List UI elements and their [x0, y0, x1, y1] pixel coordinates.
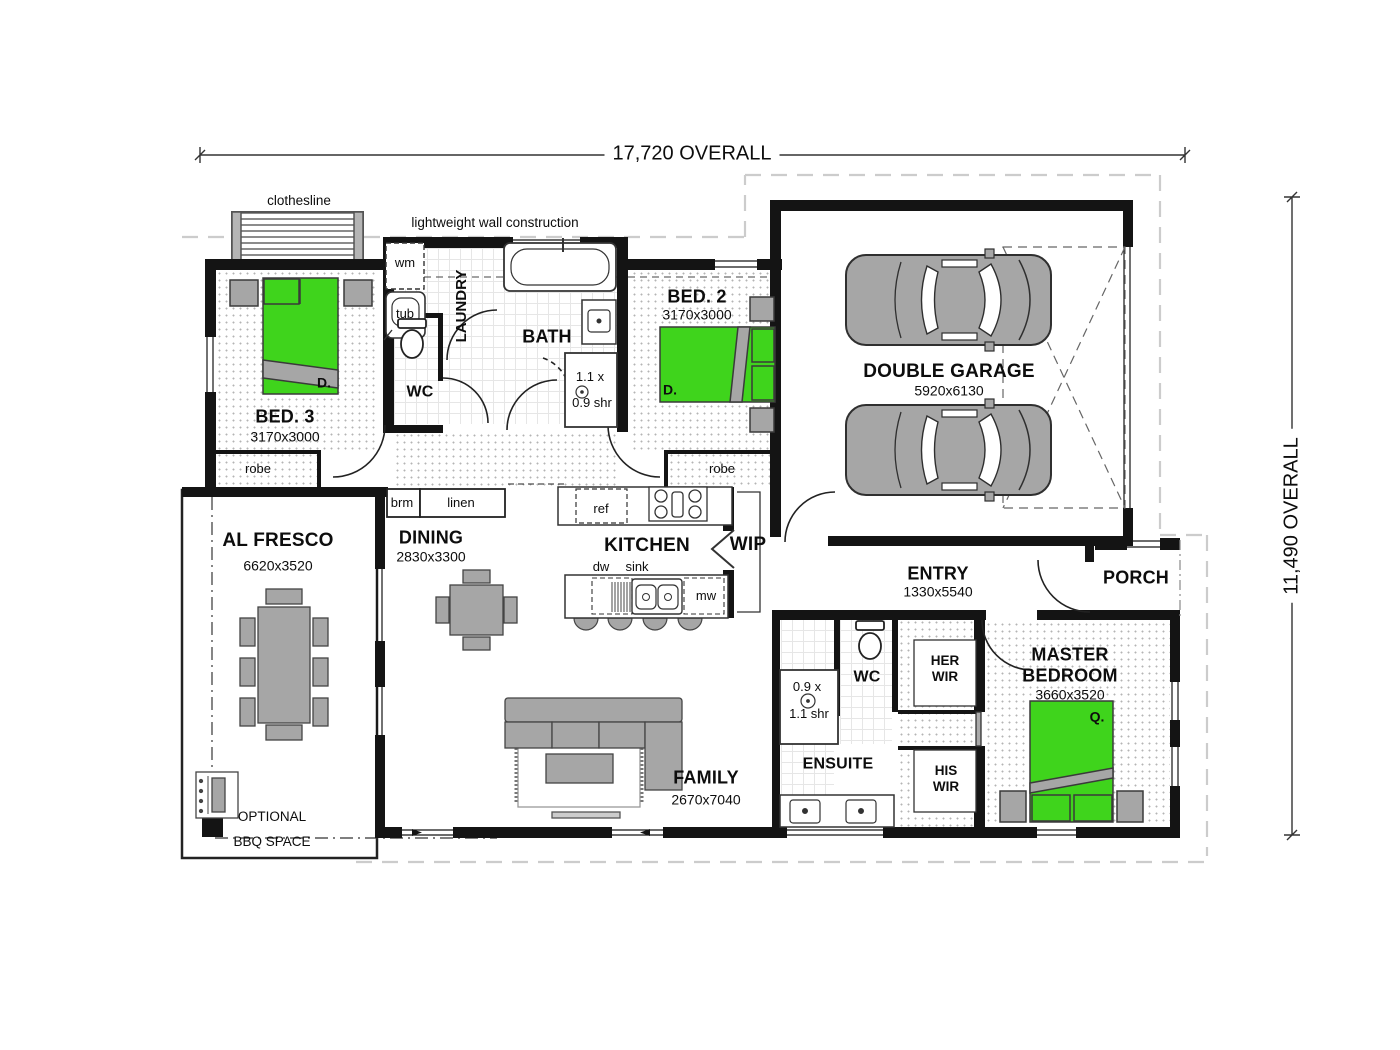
- toilet-icon-wc2: [856, 621, 884, 659]
- ensuite-shower-dim2: 1.1 shr: [789, 707, 829, 721]
- her-wir-label1: HER: [931, 654, 960, 668]
- ensuite-shower-dim1: 0.9 x: [793, 680, 821, 694]
- garage-label: DOUBLE GARAGE: [863, 362, 1035, 382]
- coffee-table: [546, 754, 613, 783]
- stool-icon: [608, 618, 632, 630]
- hall-storage: [387, 484, 566, 517]
- toilet-icon-wc1: [398, 319, 426, 358]
- master-bed-tag: Q.: [1090, 710, 1105, 725]
- tub-label: tub: [396, 307, 414, 321]
- bbq-icon: [196, 772, 238, 818]
- wc2-label: WC: [853, 670, 880, 687]
- garage-dims: 5920x6130: [914, 384, 983, 399]
- bed2-dims: 3170x3000: [662, 308, 731, 323]
- his-wir-label2: WIR: [933, 780, 959, 794]
- tv-unit: [552, 812, 620, 818]
- clothesline-label: clothesline: [267, 194, 331, 208]
- kitchen-bench: [558, 487, 732, 525]
- entry-dims: 1330x5540: [903, 585, 972, 600]
- dw-label: dw: [593, 560, 610, 574]
- bath-shower-dim2: 0.9 shr: [572, 396, 612, 410]
- bed3-robe-label: robe: [245, 462, 271, 476]
- bath-vanity-icon: [582, 300, 616, 344]
- dining-table-set: [436, 570, 517, 650]
- floor-plan: 17,720 OVERALL 11,490 OVERALL clotheslin…: [0, 0, 1400, 1050]
- garage-car-2: [846, 399, 1051, 501]
- her-wir-label2: WIR: [932, 670, 958, 684]
- master-label1: MASTER: [1031, 646, 1108, 665]
- clothesline-icon: [232, 212, 363, 263]
- bath-shower-dim1: 1.1 x: [576, 370, 604, 384]
- optional-bbq-label2: BBQ SPACE: [233, 835, 310, 849]
- bed2-robe-label: robe: [709, 462, 735, 476]
- overall-height-dimension: 11,490 OVERALL: [1282, 429, 1303, 603]
- master-dims: 3660x3520: [1035, 688, 1104, 703]
- bed3-bed: [230, 278, 372, 394]
- family-label: FAMILY: [673, 769, 739, 788]
- kitchen-label: KITCHEN: [604, 536, 690, 556]
- his-wir-label1: HIS: [935, 764, 958, 778]
- alfresco-label: AL FRESCO: [222, 531, 333, 551]
- family-dims: 2670x7040: [671, 793, 740, 808]
- stool-icon: [574, 618, 598, 630]
- master-label2: BEDROOM: [1022, 667, 1117, 686]
- linen-label: linen: [447, 496, 474, 510]
- stool-icon: [678, 618, 702, 630]
- bed2-label: BED. 2: [667, 288, 726, 307]
- family-furniture: [505, 698, 682, 818]
- alfresco-dims: 6620x3520: [243, 559, 312, 574]
- lightweight-wall-label: lightweight wall construction: [411, 216, 578, 230]
- wc1-label: WC: [406, 385, 433, 402]
- ensuite-vanity-icon: [780, 795, 894, 827]
- mirror-door: [976, 712, 981, 746]
- bed3-label: BED. 3: [255, 408, 314, 427]
- bed2-bed-tag: D.: [663, 383, 677, 398]
- bathtub-icon: [504, 238, 616, 291]
- brm-label: brm: [391, 496, 413, 510]
- mw-label: mw: [696, 589, 716, 603]
- wm-label: wm: [395, 256, 415, 270]
- overall-width-dimension: 17,720 OVERALL: [605, 144, 780, 165]
- bath-shower-icon: [565, 353, 617, 427]
- cooktop-icon: [649, 487, 707, 521]
- dining-label: DINING: [399, 529, 463, 548]
- laundry-label: LAUNDRY: [454, 270, 470, 343]
- master-bed: [1000, 701, 1143, 822]
- sink-label: sink: [625, 560, 648, 574]
- ensuite-label: ENSUITE: [803, 757, 874, 774]
- wip-label: WIP: [730, 535, 767, 555]
- bath-label: BATH: [522, 328, 571, 347]
- bed3-dims: 3170x3000: [250, 430, 319, 445]
- optional-bbq-label1: OPTIONAL: [238, 810, 306, 824]
- porch-label: PORCH: [1103, 569, 1169, 588]
- stool-icon: [643, 618, 667, 630]
- garage-car-1: [846, 249, 1051, 351]
- entry-label: ENTRY: [907, 565, 968, 584]
- ref-label: ref: [593, 502, 608, 516]
- bed3-bed-tag: D.: [317, 376, 331, 391]
- dining-dims: 2830x3300: [396, 550, 465, 565]
